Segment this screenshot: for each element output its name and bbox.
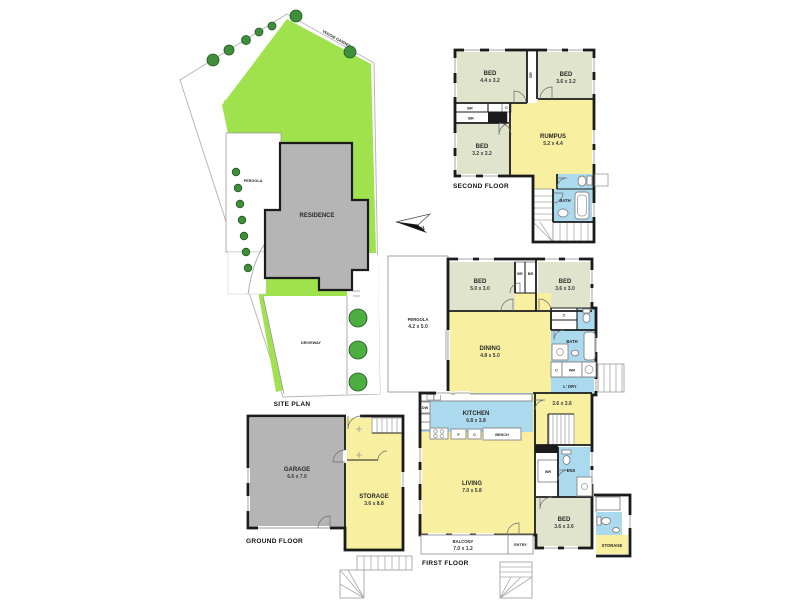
first-floor-title: FIRST FLOOR (422, 560, 469, 567)
gf-external-stair (340, 556, 412, 598)
north-arrow: N (396, 214, 430, 233)
ff-wr-label: WR (545, 470, 552, 474)
ff-stair-room-dims: 3.6 x 3.6 (552, 401, 572, 407)
sf-toilet-tank (587, 176, 592, 185)
ff-ens-toilet (563, 456, 570, 465)
ff-robe2 (525, 262, 536, 293)
ff-wall-mass (535, 445, 558, 453)
ff-pergola-label: PERGOLA (408, 317, 429, 322)
ff-bench-label: BENCH (495, 433, 509, 437)
sf-basin-icon (558, 209, 568, 217)
ff-external-stair (500, 562, 532, 598)
ff-robe2-label: BR (528, 272, 534, 276)
site-residence-label: RESIDENCE (299, 213, 334, 219)
site-residence: RESIDENCE (265, 143, 368, 296)
ground-floor-title: GROUND FLOOR (246, 538, 303, 545)
sf-toilet-icon (578, 176, 586, 186)
gf-storage-dims: 3.6 x 8.8 (364, 501, 384, 507)
site-plan: DRIVEWAY PERGOLA RESIDENCE VEGGIE GARDEN (180, 10, 380, 408)
sf-bed3-dims: 3.2 x 3.2 (472, 151, 492, 157)
ff-bathtub (584, 332, 595, 360)
sf-wall-mass (488, 112, 507, 123)
second-floor-plan: BED 4.4 x 3.2 BED 3.6 x 3.2 BED 3.2 x 3.… (453, 48, 608, 242)
ff-bath-label: BATH (566, 339, 577, 344)
ff-bed2-label: BED (559, 279, 572, 285)
ff-bath-basin (572, 350, 579, 356)
ff-stairs (549, 414, 574, 445)
ff-living-label: LIVING (462, 481, 482, 487)
ff-pergola-dims: 4.2 x 5.0 (408, 324, 428, 330)
sf-bed1-dims: 4.4 x 3.2 (480, 78, 500, 84)
ff-robe1-label: BR (517, 272, 523, 276)
site-pergola-label: PERGOLA (244, 179, 263, 183)
ff-bed3-dims: 3.6 x 3.6 (554, 524, 574, 530)
sf-bath-label: BATH (559, 198, 570, 203)
ff-closet-hall-label: C (563, 314, 566, 318)
ff-living-dims: 7.0 x 5.8 (462, 488, 482, 494)
floorplan-page: DRIVEWAY PERGOLA RESIDENCE VEGGIE GARDEN (0, 0, 800, 600)
ff-wr-hall-label: WR (569, 369, 576, 373)
first-floor-plan: PERGOLA 4.2 x 5.0 (388, 256, 632, 598)
second-floor-title: SECOND FLOOR (453, 183, 509, 190)
ff-wc1-toilet (583, 314, 590, 323)
sf-landing (595, 174, 608, 186)
ff-wc2-toilet (602, 518, 611, 525)
sf-bed2-label: BED (560, 72, 573, 78)
ff-closet-kitchen-label: C (473, 433, 476, 437)
ff-ens-shower (577, 477, 592, 496)
ff-closet-laundry-label: C (555, 369, 558, 373)
ff-kitchen-dims: 6.8 x 3.8 (466, 418, 486, 424)
ff-bath-vanity (552, 344, 568, 360)
driveway-label: DRIVEWAY (301, 341, 321, 345)
floorplan-canvas: DRIVEWAY PERGOLA RESIDENCE VEGGIE GARDEN (0, 0, 800, 600)
ff-cooktop (430, 428, 448, 439)
ff-bed3-label: BED (558, 517, 571, 523)
gf-garage-room (250, 418, 345, 528)
sf-robe2-label: BR (468, 117, 474, 121)
ff-bed1-label: BED (474, 279, 487, 285)
sf-robe1-label: BR (467, 107, 473, 111)
ff-dining-dims: 4.8 x 5.0 (480, 353, 500, 359)
ff-dining-label: DINING (480, 346, 501, 352)
ff-dining-room (448, 311, 551, 393)
ff-dw-label: DW (422, 406, 429, 410)
ff-bed1-dims: 5.0 x 3.0 (470, 286, 490, 292)
ff-landing (596, 497, 620, 510)
sf-bed3-label: BED (476, 144, 489, 150)
ff-ens-label: ENS (567, 468, 576, 473)
ff-entry-label: ENTRY (514, 543, 527, 547)
gf-storage-label: STORAGE (359, 494, 389, 500)
gf-stairs (372, 418, 403, 433)
ff-kitchen-label: KITCHEN (463, 411, 490, 417)
gf-garage-dims: 6.6 x 7.0 (287, 474, 307, 480)
ff-wc2-basin (613, 528, 620, 533)
gf-garage-label: GARAGE (284, 467, 310, 473)
ff-ldry-label: L' DRY (563, 384, 577, 389)
site-plan-title: SITE PLAN (274, 401, 311, 408)
sf-closet-label: C (505, 106, 508, 110)
sf-rumpus-label: RUMPUS (540, 134, 566, 140)
sf-rumpus-dims: 5.2 x 4.4 (543, 141, 563, 147)
ff-balcony-label: BALCONY (453, 539, 474, 544)
ff-side-stair (598, 364, 624, 392)
sf-bed1-label: BED (484, 71, 497, 77)
sf-brhall-label: BR (529, 72, 533, 78)
ff-storage-label: STORAGE (602, 543, 623, 548)
sf-bed2-dims: 3.6 x 3.2 (556, 79, 576, 85)
gf-storage-room (345, 418, 403, 550)
ff-bed2-dims: 3.6 x 3.0 (555, 286, 575, 292)
ff-balcony-dims: 7.0 x 1.2 (453, 546, 473, 552)
ground-floor-plan: GARAGE 6.6 x 7.0 STORAGE 3.6 x 8.8 GROUN… (246, 414, 412, 598)
